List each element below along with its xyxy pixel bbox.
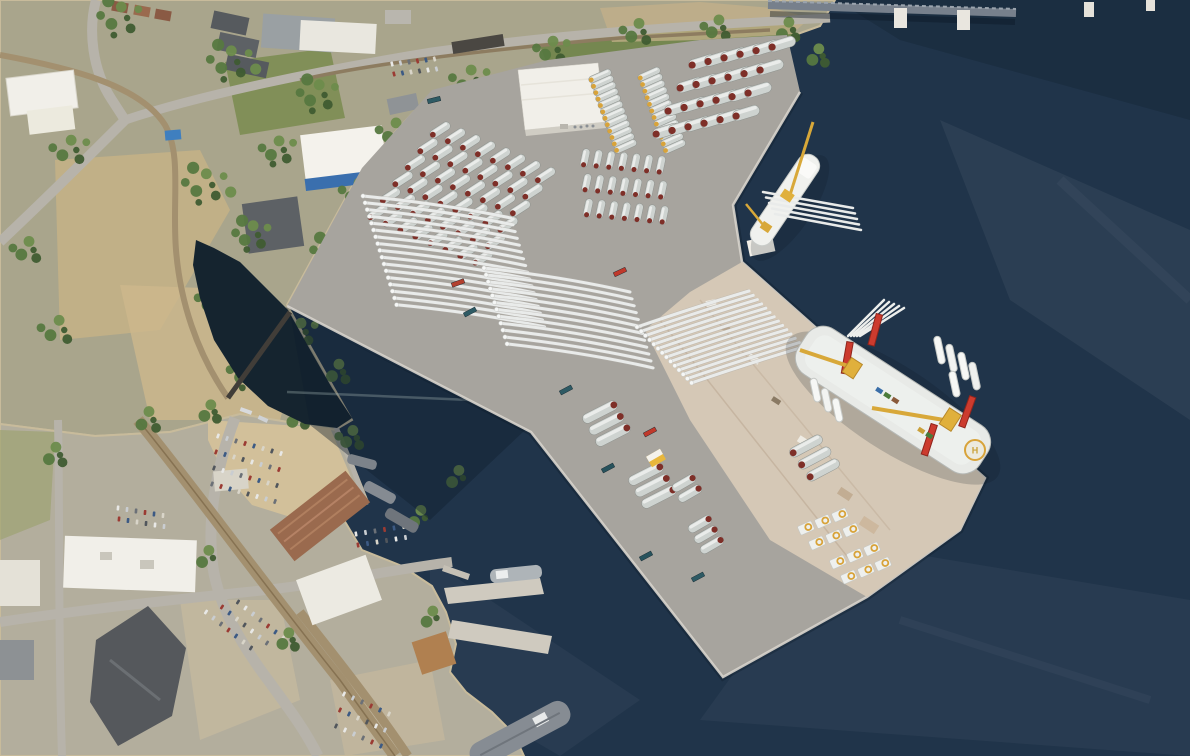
tree [714,15,725,26]
tree [281,147,287,153]
tree [106,18,118,30]
blade-root [386,276,390,280]
tree [211,191,221,201]
commercial-building [63,536,197,593]
tree [236,68,246,78]
tree [640,29,646,35]
blade-root [685,377,689,381]
tree [265,149,277,161]
tree [813,43,824,54]
tree [215,62,227,74]
roof-unit [100,552,112,560]
tree [256,239,266,249]
helipad-label: H [972,446,979,456]
tree [290,642,300,652]
car [162,524,165,529]
tree [634,18,645,29]
blade-root [384,269,388,273]
tree [75,154,85,164]
tree [8,244,17,253]
building-gray [0,640,34,680]
tree [37,323,46,332]
tree [321,92,327,98]
tree [225,186,236,197]
tree [201,168,212,179]
blade-root [490,294,494,298]
tree [448,73,457,82]
car [116,505,119,510]
tree [151,423,161,433]
dock-bay-dot [592,125,595,128]
tree [331,83,339,91]
tree [314,79,325,90]
tree [375,125,384,134]
tree [264,224,272,232]
tree [421,616,433,628]
blade-root [488,287,492,291]
dock-bay-dot [580,126,583,129]
warehouse-door [560,124,568,129]
tree [790,27,796,33]
swimming-pool [165,129,182,140]
tree [258,143,267,152]
tree [554,47,560,53]
tree [231,228,240,237]
aerial-port-rendering: H [0,0,1190,756]
tree [116,2,127,13]
car [125,507,128,512]
tree [532,44,541,53]
car [161,513,164,518]
tree [427,606,438,617]
tree [126,23,136,33]
blade-root [656,346,660,350]
scene-canvas: H [0,0,1190,756]
tree [54,315,65,326]
blade-root [499,321,503,325]
blade-root [376,242,380,246]
tree [289,139,297,147]
tree [150,417,156,423]
car [144,521,147,526]
blade-root [652,342,656,346]
tree [136,419,148,431]
tree [243,246,250,253]
dock-bay-dot [586,125,589,128]
roof-unit [140,560,154,569]
bridge-pier [1084,2,1094,17]
tree [625,31,637,43]
tree [304,95,316,107]
blade-root [635,325,639,329]
tree [220,76,227,83]
tree [274,135,285,146]
shed [385,10,411,24]
blade-root [690,381,694,385]
blade-root [380,255,384,259]
blade-root [374,235,378,239]
tree [210,555,216,561]
tree [466,65,477,76]
tree [30,247,36,253]
tree [15,249,27,261]
blade-root [669,359,673,363]
tree [784,17,795,28]
ship-superstructure [496,570,509,579]
tree [236,215,248,227]
tree [209,182,215,188]
tree [24,236,35,247]
tree [190,185,202,197]
dock-bay-dot [574,126,577,129]
tree [282,154,292,164]
building-white [0,560,40,606]
tree [245,49,253,57]
blade-root [660,351,664,355]
tree [57,452,63,458]
blade-root [482,266,486,270]
tree [820,58,830,68]
blade-root [495,307,499,311]
tree [548,36,559,47]
car [126,518,129,523]
tree [73,147,79,153]
tree [181,178,190,187]
tree [563,39,571,47]
blade-root [369,221,373,225]
tree [58,457,68,467]
tree [807,54,819,66]
tree [196,556,208,568]
tree [309,107,316,114]
blade-root [677,368,681,372]
tree [134,5,142,13]
tree [226,45,237,56]
blade-root [361,194,365,198]
tree [43,453,55,465]
road-west [58,420,62,756]
tree [212,414,222,424]
blade-root [486,280,490,284]
blade-root [503,335,507,339]
tree [205,399,216,410]
tree [277,638,289,650]
tree [296,88,305,97]
bridge-pier [1146,0,1155,11]
tree [66,135,77,146]
bridge-pier [894,8,907,28]
car [135,519,138,524]
car [117,516,120,521]
blade-root [388,282,392,286]
tree [270,161,277,168]
tree [539,49,551,61]
tree [255,232,261,238]
blade-root [390,289,394,293]
tree [62,334,72,344]
tree [82,138,90,146]
bridge-pier [957,10,970,30]
blade-root [484,273,488,277]
tree [61,327,67,333]
tree [248,220,259,231]
car [143,510,146,515]
blade-root [648,338,652,342]
blade-root [363,201,367,205]
blade-root [382,262,386,266]
tree [48,143,57,152]
blade-root [492,300,496,304]
tree [51,442,62,453]
blade-root [395,303,399,307]
tree [31,253,41,263]
blade-root [681,372,685,376]
tree [323,100,333,110]
blade-root [371,228,375,232]
car [152,511,155,516]
car [153,522,156,527]
blade-root [365,208,369,212]
blade-root [501,328,505,332]
tree [338,185,347,194]
blade-root [392,296,396,300]
tree [144,406,155,417]
tree [720,25,726,31]
tree [96,11,105,20]
tree [618,26,627,35]
vessel-helipad: H [965,440,985,460]
tree [199,410,211,422]
tree [56,149,68,161]
tree [699,22,708,31]
tree [301,73,313,85]
tree [203,545,214,556]
blade-root [664,355,668,359]
blade-root [367,214,371,218]
blade-root [497,314,501,318]
tree [641,35,651,45]
tree [187,162,199,174]
tree [195,199,202,206]
industrial-building [299,20,376,54]
blade-root [378,248,382,252]
tree [234,59,240,65]
blade-root [643,334,647,338]
blade-root [639,329,643,333]
tree [239,234,251,246]
tree [124,15,130,21]
car [134,508,137,513]
blade-root [505,342,509,346]
tree [212,39,224,51]
blade-root [673,364,677,368]
tree [206,55,215,64]
tree [220,172,228,180]
tree [283,627,294,638]
tree [483,68,491,76]
tree [110,32,117,39]
tree [45,329,57,341]
tree [250,63,261,74]
terminal-warehouse [518,63,606,136]
